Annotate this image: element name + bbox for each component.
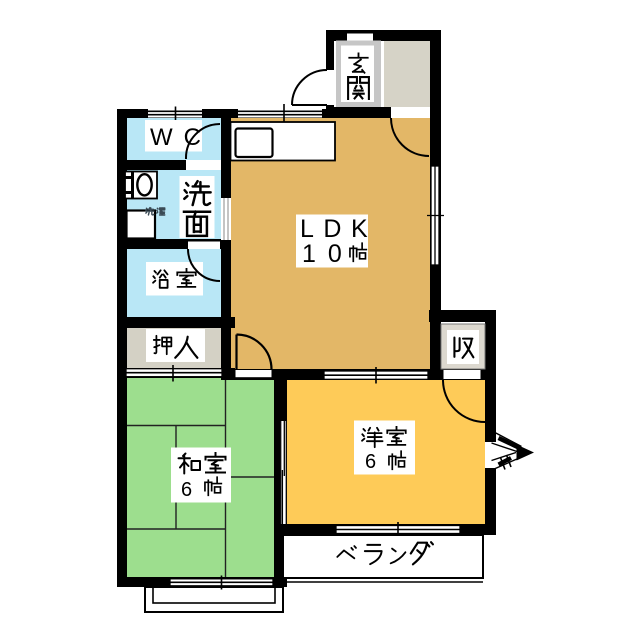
svg-text:6: 6 — [365, 451, 376, 473]
svg-text:LDK: LDK — [300, 215, 377, 243]
svg-text:6: 6 — [181, 479, 192, 501]
svg-text:10: 10 — [302, 240, 354, 268]
